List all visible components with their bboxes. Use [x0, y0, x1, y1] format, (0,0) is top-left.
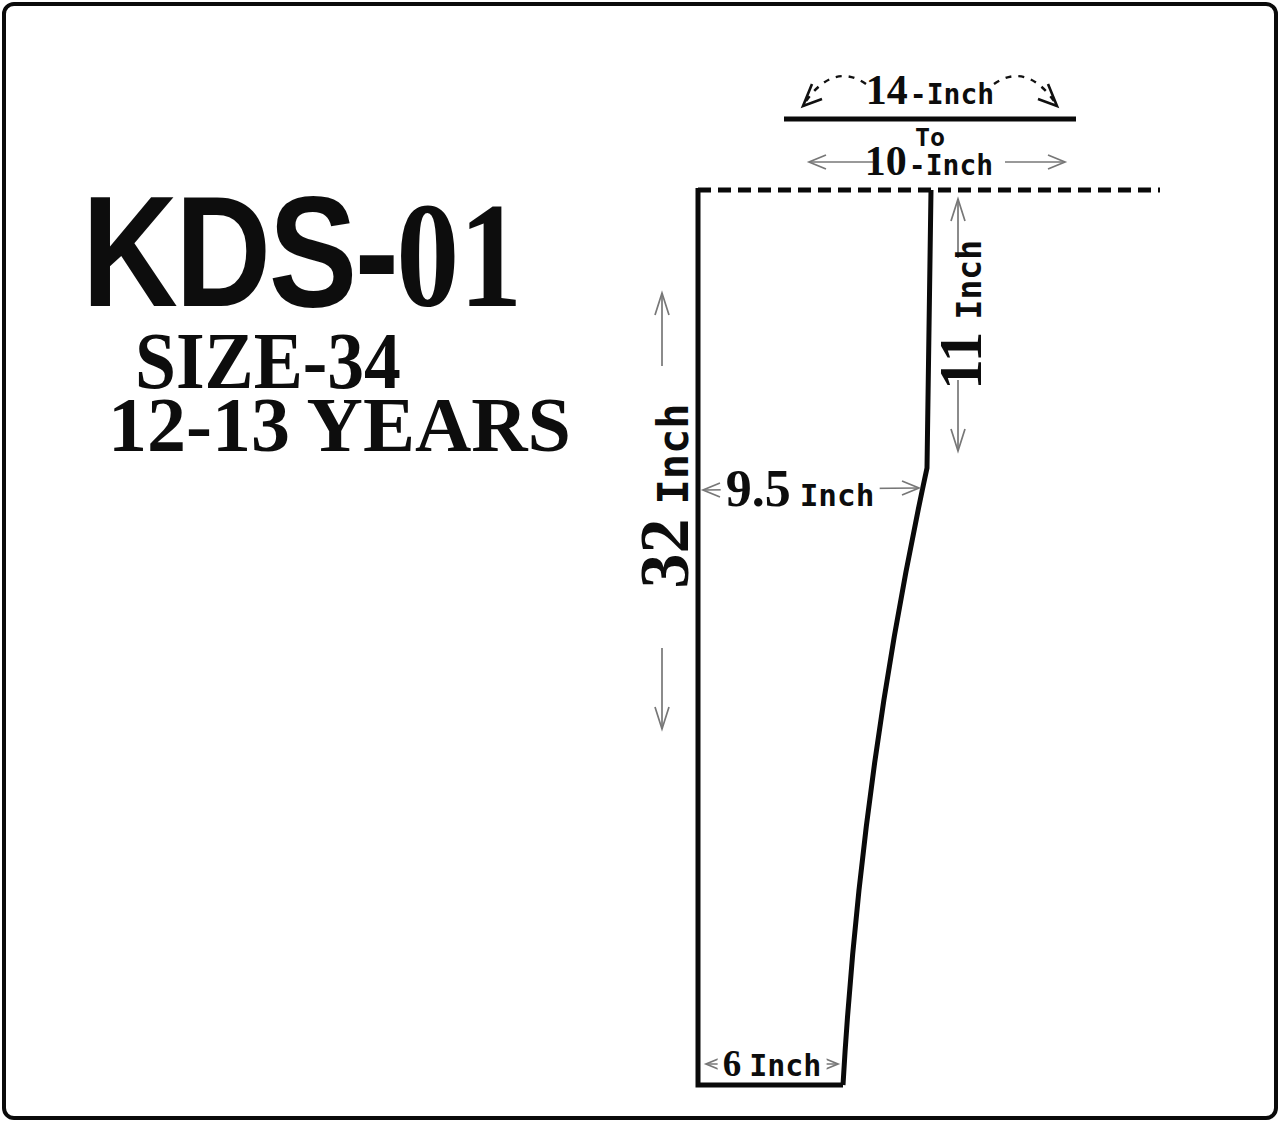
age-range-label: 12-13 YEARS: [108, 386, 571, 464]
waist-relaxed-value: 10: [865, 140, 907, 182]
thigh-unit: Inch: [800, 480, 875, 511]
leg-opening-label: 6 Inch: [718, 1045, 827, 1082]
waist-stretched-label: 14 -Inch: [866, 69, 994, 111]
length-value: 32: [630, 519, 700, 589]
pattern-outline: [698, 188, 931, 1085]
leg-opening-value: 6: [723, 1045, 742, 1082]
model-title: KDS-01: [82, 172, 522, 330]
model-title-prefix: KDS-: [82, 172, 396, 330]
length-unit: Inch: [653, 403, 695, 504]
stretch-arrow-left-icon: [803, 76, 866, 106]
waist-stretched-unit: -Inch: [910, 81, 994, 109]
leg-opening-unit: Inch: [749, 1051, 821, 1081]
waist-relaxed-unit: -Inch: [909, 152, 993, 180]
model-title-suffix: 01: [396, 180, 522, 330]
waist-stretched-value: 14: [866, 69, 908, 111]
pattern-sheet: KDS-01 SIZE-34 12-13 YEARS 14 -Inch To 1…: [0, 0, 1280, 1122]
thigh-label: 9.5 Inch: [721, 463, 880, 515]
rise-value: 11: [929, 331, 991, 390]
rise-unit: Inch: [953, 240, 986, 319]
waist-relaxed-label: 10 -Inch: [865, 140, 993, 182]
thigh-value: 9.5: [726, 463, 791, 515]
stretch-arrow-right-icon: [994, 76, 1057, 106]
